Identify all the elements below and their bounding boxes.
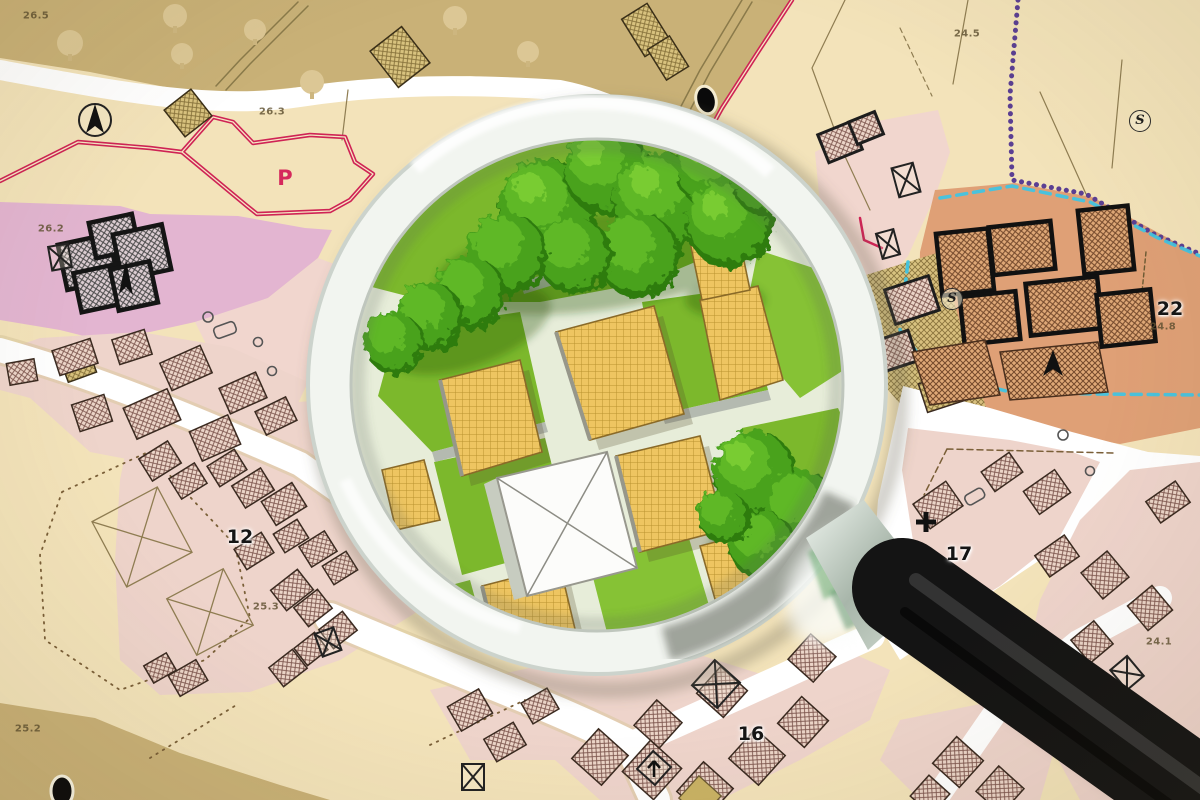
north-arrow-icon [79,104,111,136]
map-canvas [0,0,1200,800]
cadastral-map-scene: 26.526.324.526.225.325.224.824.112171622… [0,0,1200,800]
black-oval-marker-icon [51,776,73,800]
